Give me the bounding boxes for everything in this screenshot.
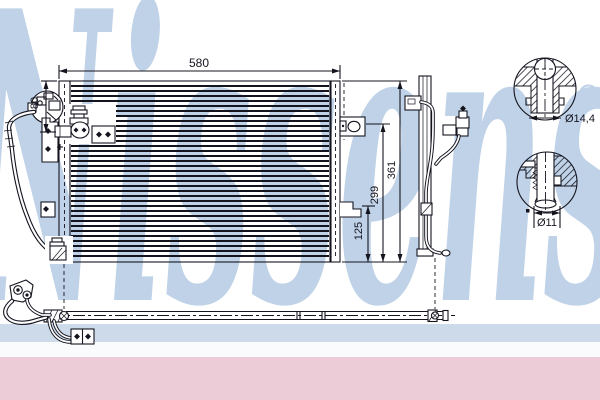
dimension-299: 299	[366, 124, 390, 262]
bolt-block	[71, 329, 94, 344]
detail-a-diameter-label: Ø14,4	[565, 113, 595, 125]
detail-b-marker	[526, 209, 530, 213]
dim-80-label: 80	[29, 97, 41, 109]
condenser-side-view	[405, 76, 469, 256]
dim-361-label: 361	[386, 161, 398, 179]
technical-drawing-page: Nissens ®	[0, 0, 600, 400]
dimension-580: 580	[59, 56, 340, 79]
lower-right-bracket	[340, 202, 361, 217]
dim-299-label: 299	[369, 186, 381, 204]
right-bracket-oval-hole	[340, 117, 365, 136]
dim-125-label: 125	[353, 222, 365, 240]
side-valve-fitting	[436, 106, 469, 165]
detail-circle-a: Ø14,4	[514, 56, 595, 125]
pipe-right-fitting	[428, 310, 439, 322]
pipe-clamp	[421, 203, 432, 215]
bottom-pipe-assembly	[5, 258, 455, 344]
pipe-end-cap	[443, 311, 448, 321]
hose-flange	[10, 280, 33, 302]
dim-580-label: 580	[189, 56, 209, 70]
detail-b-diameter-label: Ø11	[537, 217, 557, 229]
detail-circle-b: Ø11	[517, 150, 579, 229]
side-top-connector	[405, 96, 421, 110]
outlet-fitting	[45, 236, 73, 264]
condenser-drawing: 580 80 361 299	[0, 0, 600, 400]
lower-left-bracket	[41, 202, 55, 217]
dimension-361: 361	[342, 81, 407, 262]
mounting-plate	[92, 126, 115, 143]
